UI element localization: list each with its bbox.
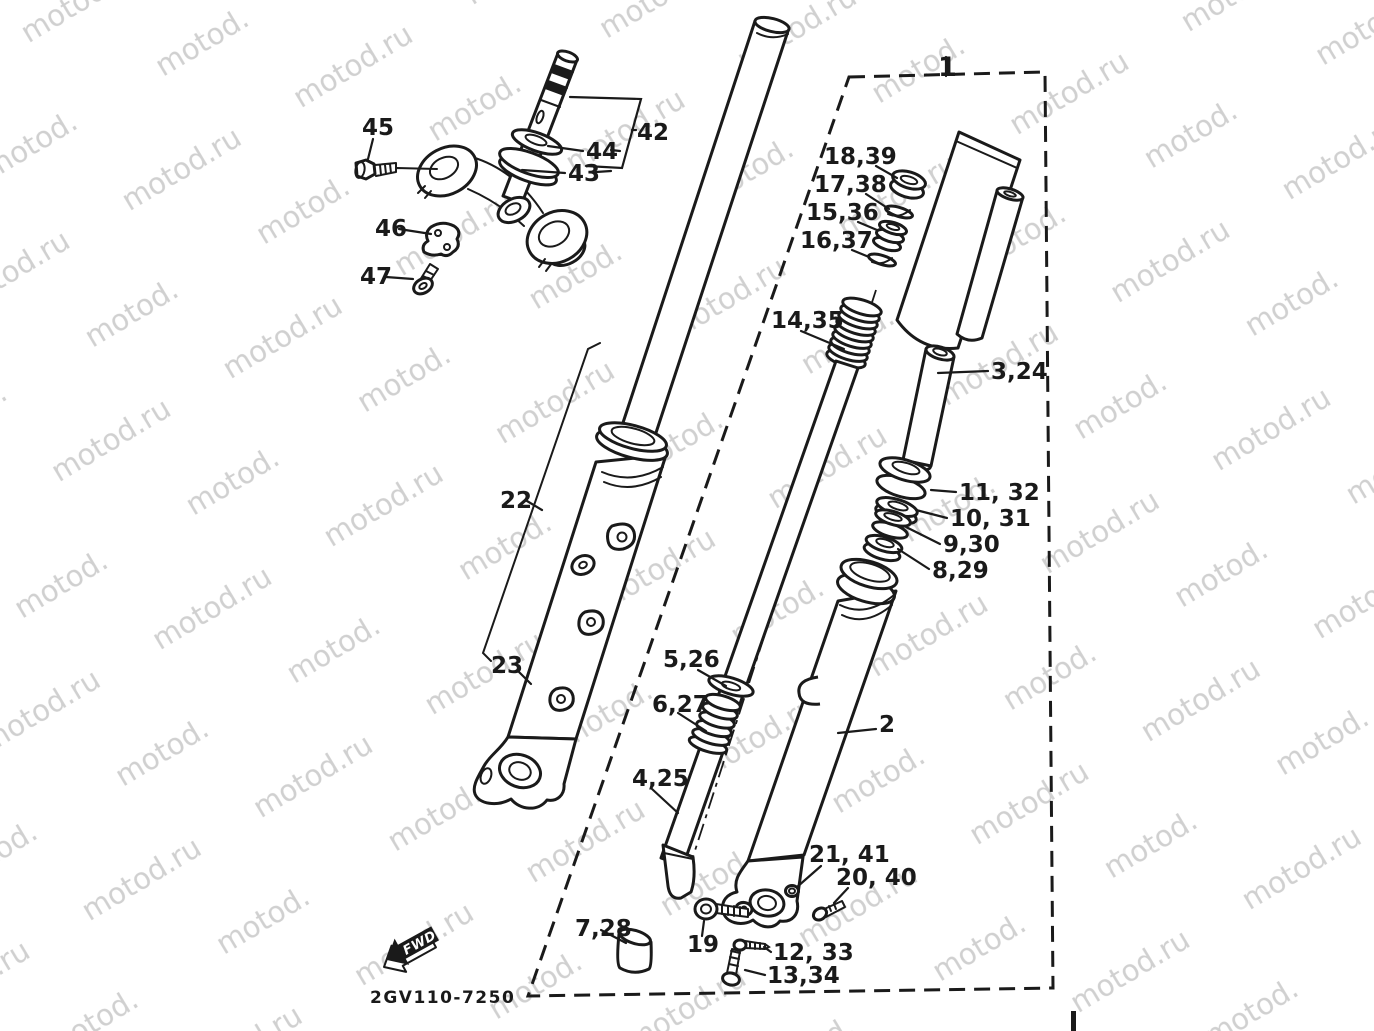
part-label-4-25: 4,25 [632, 766, 689, 792]
part-label-19: 19 [687, 932, 719, 958]
part-label-43: 43 [568, 161, 600, 187]
part-label-23: 23 [491, 653, 523, 679]
part-label-2: 2 [879, 712, 895, 738]
part-label-16-37: 16,37 [800, 228, 873, 254]
part-label-47: 47 [360, 264, 392, 290]
part-label-18-39: 18,39 [824, 144, 897, 170]
part-label-46: 46 [375, 216, 407, 242]
part-label-9-30: 9,30 [943, 532, 1000, 558]
parts-diagram-page: motod.ru motod.ru [0, 0, 1374, 1031]
part-label-6-27: 6,27 [652, 692, 709, 718]
part-label-13-34: 13,34 [767, 963, 840, 989]
part-label-11-32: 11, 32 [959, 480, 1040, 506]
part-label-8-29: 8,29 [932, 558, 989, 584]
part-label-7-28: 7,28 [575, 916, 632, 942]
part-label-42: 42 [637, 120, 669, 146]
clamp-piece-46-drawing [423, 223, 459, 255]
part-label-3-24: 3,24 [991, 359, 1048, 385]
diagram-code: 2GV110-7250 [370, 988, 515, 1008]
part-label-45: 45 [362, 115, 394, 141]
part-label-1: 1 [938, 52, 957, 83]
page-edge-mark [1071, 1011, 1076, 1031]
part-label-10-31: 10, 31 [950, 506, 1031, 532]
part-label-17-38: 17,38 [814, 172, 887, 198]
part-label-14-35: 14,35 [771, 308, 844, 334]
part-label-5-26: 5,26 [663, 647, 720, 673]
part-label-15-36: 15,36 [806, 200, 879, 226]
part-label-20-40: 20, 40 [836, 865, 917, 891]
front-fork-parts-diagram: motod.ru motod.ru [0, 0, 1374, 1031]
part-label-22: 22 [500, 488, 532, 514]
